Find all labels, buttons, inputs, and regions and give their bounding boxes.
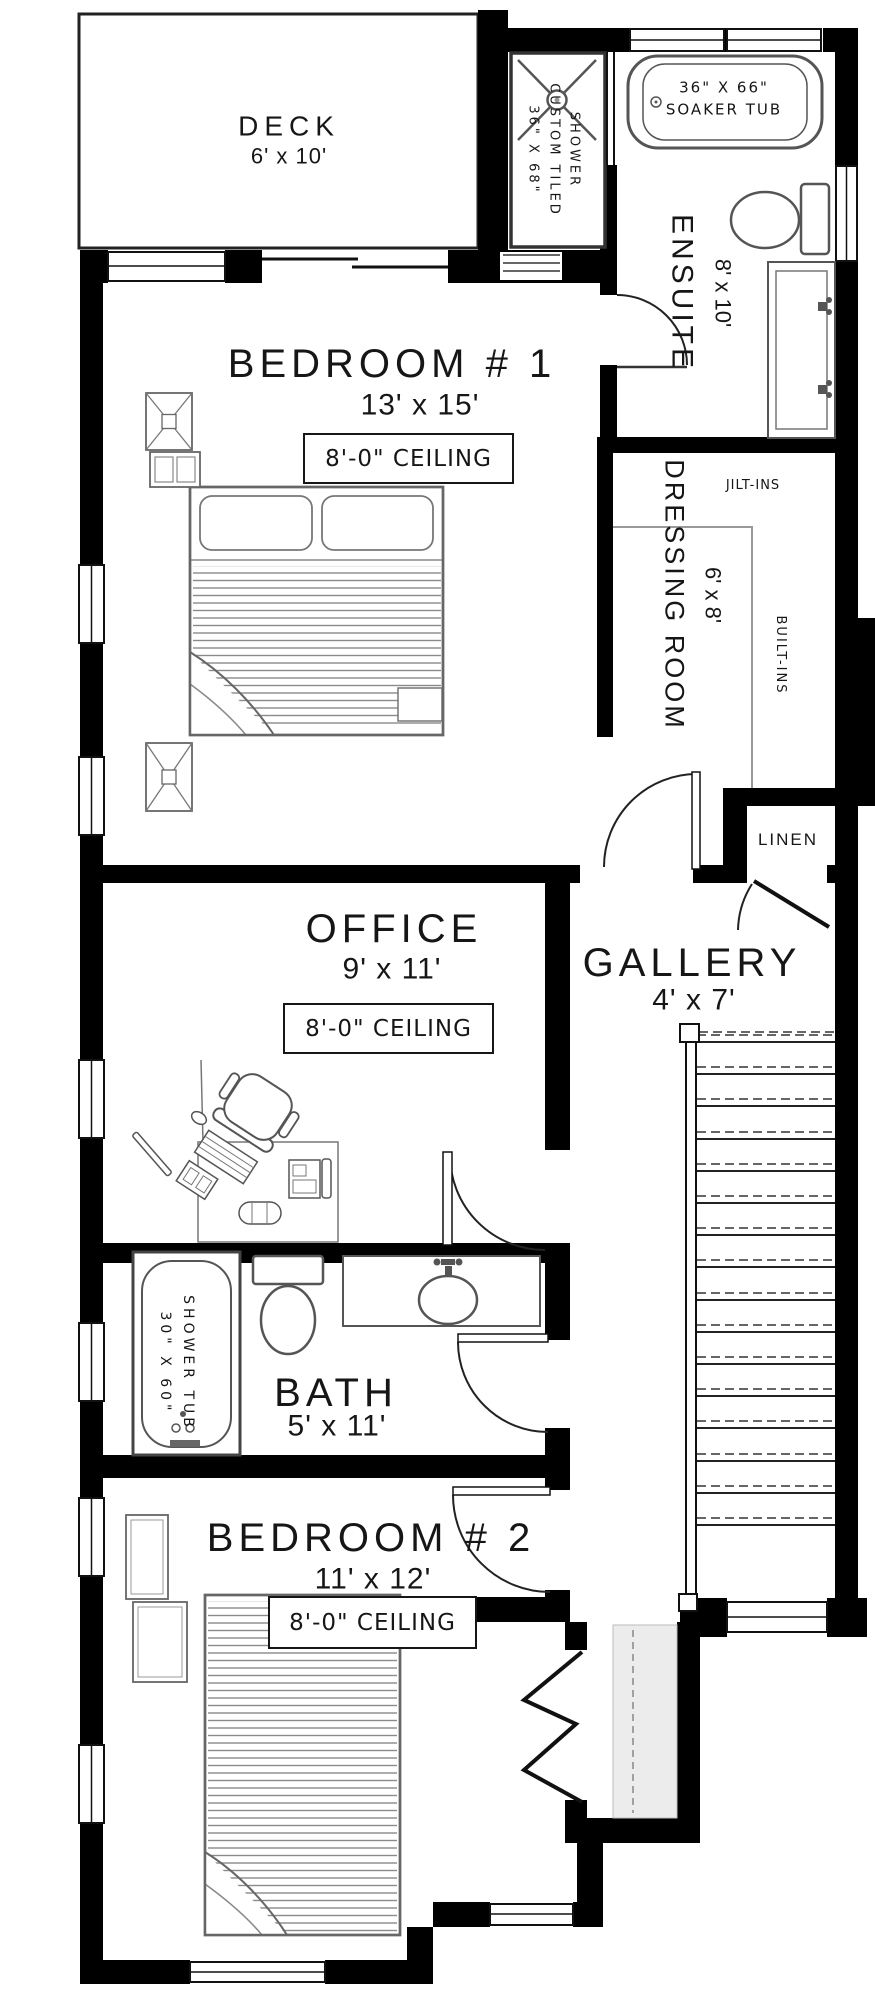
shower-tub-label: 30" X 60" SHOWER TUB <box>156 1295 196 1431</box>
bedroom1-label: BEDROOM # 1 <box>228 343 556 385</box>
linen-label: LINEN <box>758 831 818 849</box>
stairs <box>679 1024 835 1611</box>
office-door <box>443 1152 545 1250</box>
bedroom2-ceiling-note: 8'-0" CEILING <box>268 1596 477 1649</box>
newel-post <box>679 1594 697 1611</box>
office-furniture <box>132 1060 338 1242</box>
bay-window-right <box>490 1904 573 1925</box>
builtins-top-label: JILT-INS <box>726 479 780 493</box>
bedroom2-size-label: 11' x 12' <box>315 1563 432 1595</box>
bedroom1-ceiling-note: 8'-0" CEILING <box>303 433 514 484</box>
transom-detail <box>500 252 562 280</box>
tray <box>239 1202 281 1224</box>
mouse <box>189 1109 208 1127</box>
builtins-side-label: BUILT-INS <box>772 616 788 695</box>
side-table <box>146 393 192 450</box>
ensuite-label: ENSUITE 8' x 10' <box>664 214 737 372</box>
bed-1 <box>190 487 443 735</box>
floor-plan: DECK 6' x 10' 36" X 68" CUSTOM TILED SHO… <box>0 0 875 2000</box>
newel-post <box>680 1024 699 1042</box>
ensuite-window <box>836 166 857 261</box>
nightstand <box>133 1602 187 1682</box>
deck-label: DECK <box>238 111 340 140</box>
gallery-label: GALLERY <box>583 942 802 984</box>
bath-size-label: 5' x 11' <box>288 1410 387 1442</box>
deck-sliding-door <box>262 259 448 267</box>
office-label: OFFICE <box>306 908 483 950</box>
bath-toilet <box>253 1256 323 1354</box>
window-top-bedroom1 <box>108 252 225 281</box>
soaker-tub-label: 36" X 66" SOAKER TUB <box>666 77 782 121</box>
floor-plan-drawing <box>0 0 875 2000</box>
desk-edge <box>201 1060 203 1142</box>
dresser <box>126 1515 168 1599</box>
pencil <box>132 1132 172 1177</box>
stairbay-window <box>727 1602 827 1632</box>
bath-vanity <box>343 1256 540 1326</box>
bedroom2-label: BEDROOM # 2 <box>207 1517 535 1559</box>
bedroom1-size-label: 13' x 15' <box>361 389 480 421</box>
bedroom2-closet <box>587 1622 677 1818</box>
desk-phone <box>289 1159 331 1198</box>
stair-railing <box>686 1032 696 1604</box>
walls <box>80 10 875 1984</box>
doors <box>443 295 829 1802</box>
gallery-size-label: 4' x 7' <box>652 984 736 1016</box>
dressing-door <box>604 772 700 869</box>
closet-bifold-doors <box>524 1652 582 1802</box>
deck-size-label: 6' x 10' <box>251 144 327 167</box>
bath-label: BATH <box>274 1372 398 1414</box>
office-size-label: 9' x 11' <box>343 953 442 985</box>
custom-shower-label: 36" X 68" CUSTOM TILED SHOWER <box>525 83 582 217</box>
bath-door <box>458 1334 548 1432</box>
phone <box>176 1161 218 1200</box>
side-table <box>146 743 192 811</box>
bay-window-bottom <box>190 1962 325 1982</box>
ensuite-vanity <box>768 262 835 438</box>
linen-door <box>738 881 829 930</box>
office-ceiling-note: 8'-0" CEILING <box>283 1003 494 1054</box>
ensuite-toilet <box>731 184 829 254</box>
dressing-room-label: DRESSING ROOM 6' x 8' <box>657 459 726 731</box>
small-chest <box>150 452 200 487</box>
